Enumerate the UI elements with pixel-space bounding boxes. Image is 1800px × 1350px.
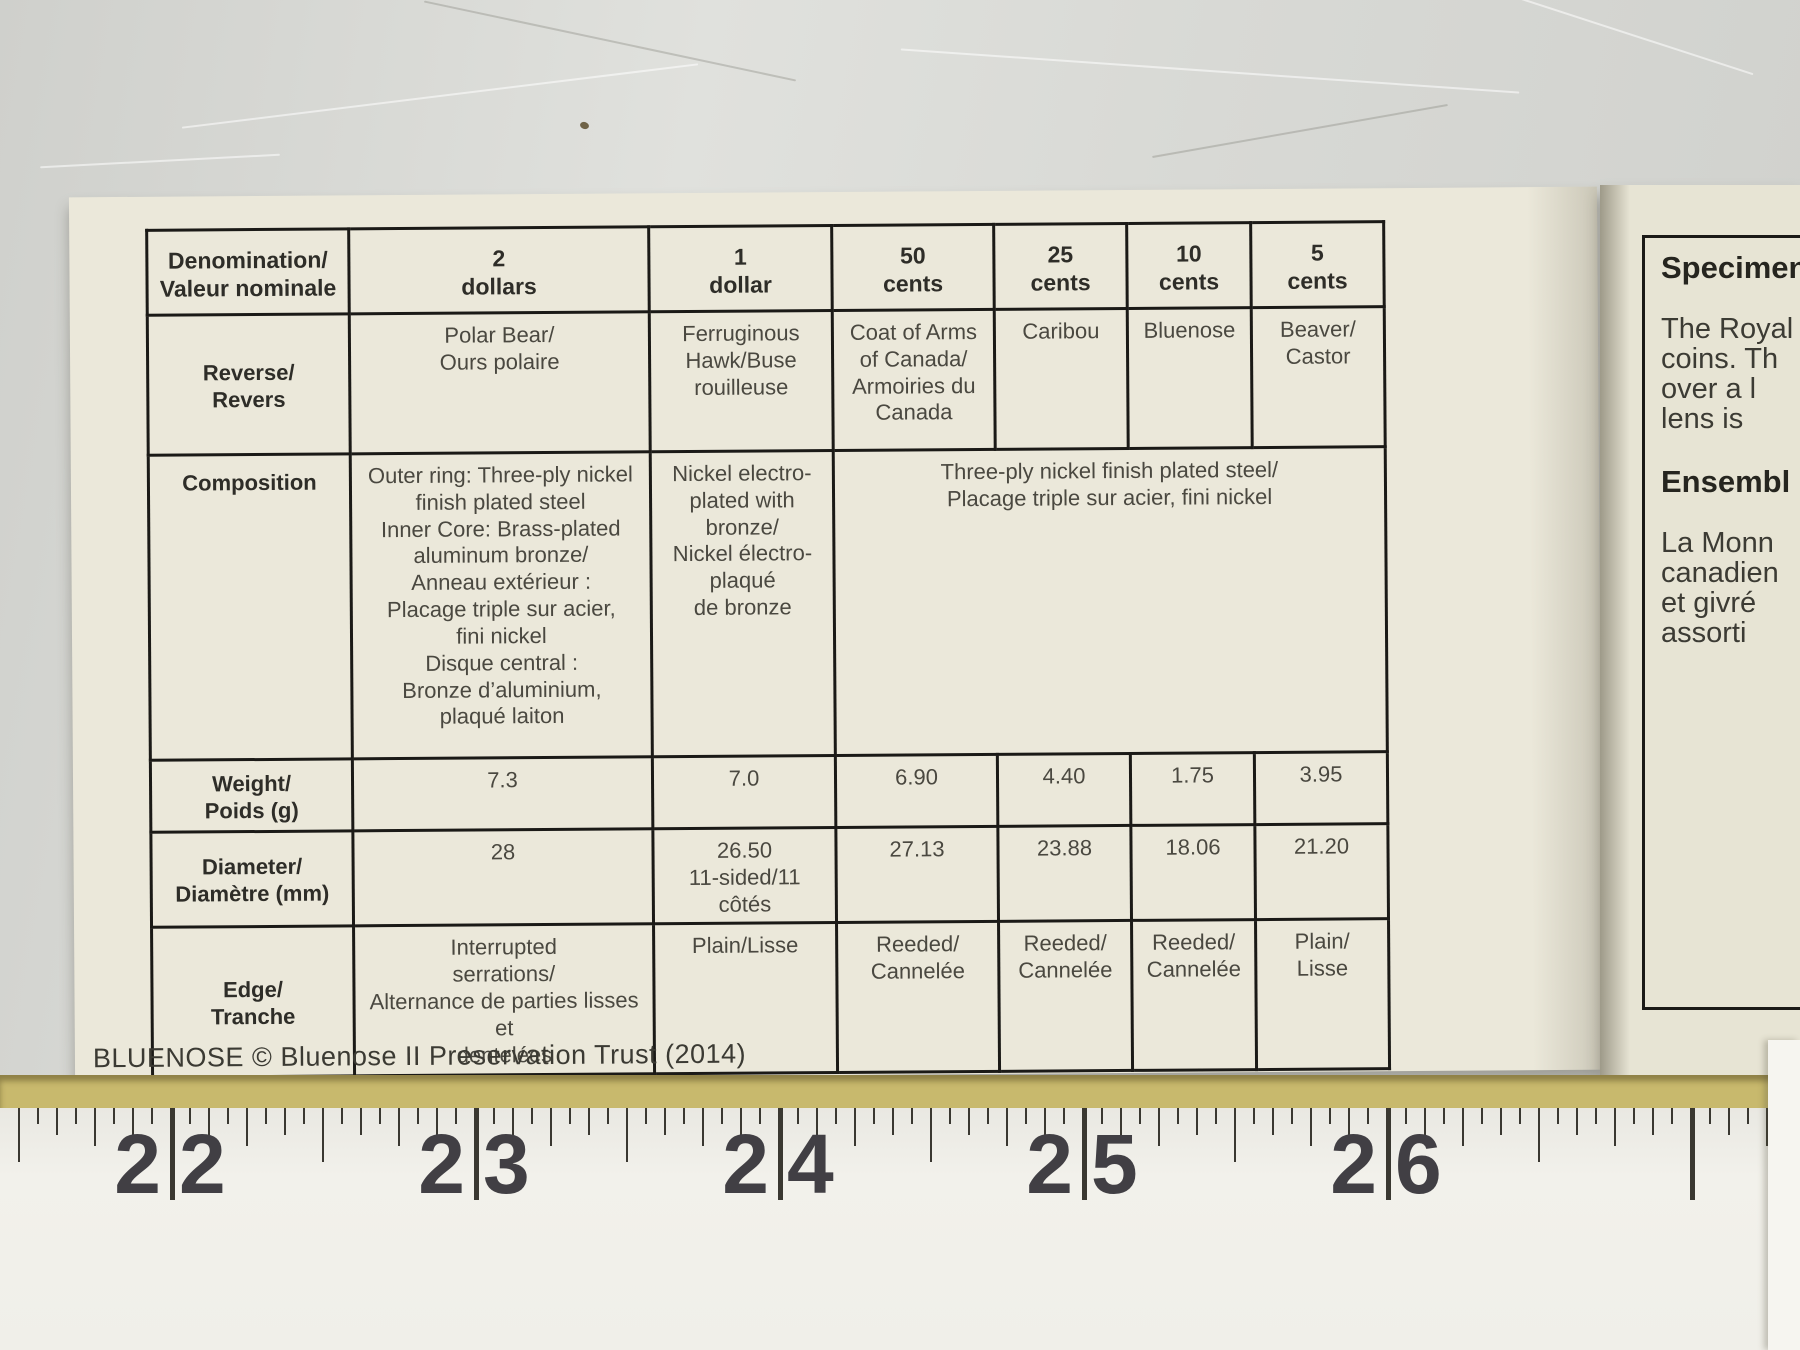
scratch-mark [40,154,280,169]
ruler-tick [1006,1108,1008,1146]
specimen-text-line: La Monn [1661,528,1800,558]
cell-diameter-2-dollars: 28 [353,829,654,927]
ruler-tick [1576,1108,1578,1135]
ruler-tick [1690,1108,1695,1200]
coin-spec-table: Denomination/ Valeur nominale 2 dollars … [145,220,1391,1078]
ruler-tick [569,1108,571,1124]
ruler-tick [1557,1108,1559,1124]
specimen-title: Specimen [1661,250,1800,286]
cell-reverse-5-cents: Beaver/ Castor [1251,307,1385,448]
specimen-text-line: over a l [1661,374,1800,404]
measuring-ruler: 2223242526 [0,1108,1800,1350]
cell-weight-5-cents: 3.95 [1254,752,1387,825]
ruler-tick [1291,1108,1293,1124]
cell-diameter-5-cents: 21.20 [1255,824,1389,920]
col-header-25-cents: 25 cents [994,223,1128,309]
cell-composition-2-dollars: Outer ring: Three-ply nickel finish plat… [350,452,652,759]
yellow-ruler-edge [0,1075,1800,1108]
booklet-left-page: Denomination/ Valeur nominale 2 dollars … [69,187,1603,1081]
ruler-tick [1177,1108,1179,1124]
specimen-text-line: canadien [1661,558,1800,588]
cell-reverse-1-dollar: Ferruginous Hawk/Buse rouilleuse [649,311,833,452]
col-header-2-dollars: 2 dollars [349,227,650,314]
ruler-number: 26 [1330,1122,1459,1206]
cell-edge-25-cents: Reeded/ Cannelée [999,921,1133,1071]
ruler-tick [303,1108,305,1124]
col-header-50-cents: 50 cents [832,224,995,310]
specimen-subtitle: Ensembl [1661,464,1800,500]
cell-reverse-2-dollars: Polar Bear/ Ours polaire [349,312,650,454]
col-header-10-cents: 10 cents [1127,223,1252,309]
ruler-tick [1462,1108,1464,1146]
table-row-weight: Weight/ Poids (g) 7.3 7.0 6.90 4.40 1.75… [150,752,1387,833]
cell-reverse-50-cents: Coat of Arms of Canada/ Armoiries du Can… [832,309,995,450]
ruler-tick [1234,1108,1236,1162]
ruler-tick [949,1108,951,1124]
ruler-tick [1652,1108,1654,1135]
ruler-tick [645,1108,647,1124]
table-row-reverse: Reverse/ Revers Polar Bear/ Ours polaire… [147,307,1385,456]
ruler-tick [18,1108,20,1162]
row-label-weight: Weight/ Poids (g) [150,759,352,832]
ruler-tick [322,1108,324,1162]
col-header-5-cents: 5 cents [1251,222,1385,308]
ruler-tick [1728,1108,1730,1135]
ruler-tick [56,1108,58,1135]
ruler-tick [987,1108,989,1124]
debris-speck [579,121,590,131]
table-row-diameter: Diameter/ Diamètre (mm) 28 26.50 11-side… [151,824,1389,928]
ruler-tick [1481,1108,1483,1124]
ruler-tick [1196,1108,1198,1135]
table-corner-header: Denomination/ Valeur nominale [147,229,350,315]
ruler-tick [911,1108,913,1124]
specimen-box: Specimen The Royal coins. Th over a l le… [1642,235,1800,1010]
specimen-text-line: coins. Th [1661,344,1800,374]
ruler-tick [398,1108,400,1146]
ruler-tick [1595,1108,1597,1124]
cell-diameter-50-cents: 27.13 [836,826,999,923]
cell-reverse-10-cents: Bluenose [1127,308,1252,449]
ruler-tick [1671,1108,1673,1124]
ruler-tick [1500,1108,1502,1135]
cell-weight-50-cents: 6.90 [835,754,997,827]
ruler-tick [1310,1108,1312,1146]
cell-diameter-1-dollar: 26.50 11-sided/11 côtés [653,828,837,925]
ruler-tick [37,1108,39,1124]
ruler-tick [607,1108,609,1124]
cell-weight-2-dollars: 7.3 [352,757,652,831]
row-label-composition: Composition [148,454,352,760]
scratch-mark [1152,104,1448,158]
row-label-reverse: Reverse/ Revers [147,314,350,455]
cell-composition-cents-merged: Three-ply nickel finish plated steel/ Pl… [833,447,1387,756]
ruler-tick [246,1108,248,1146]
ruler-tick [265,1108,267,1124]
ruler-tick [854,1108,856,1146]
ruler-tick [1272,1108,1274,1135]
specimen-text-line: assorti [1661,618,1800,648]
scratch-mark [1487,0,1754,75]
scratch-mark [182,63,698,128]
booklet-right-page: Specimen The Royal coins. Th over a l le… [1600,185,1800,1075]
photo-scene: Denomination/ Valeur nominale 2 dollars … [0,0,1800,1350]
ruler-number: 22 [114,1122,243,1206]
ruler-tick [664,1108,666,1135]
cell-weight-25-cents: 4.40 [997,753,1130,826]
ruler-tick [284,1108,286,1135]
specimen-text-line: et givré [1661,588,1800,618]
scratch-mark [424,1,796,82]
ruler-tick [968,1108,970,1135]
ruler-tick [1253,1108,1255,1124]
col-header-1-dollar: 1 dollar [649,226,833,312]
ruler-tick [873,1108,875,1124]
ruler-tick [360,1108,362,1135]
ruler-tick [626,1108,628,1162]
ruler-tick [379,1108,381,1124]
cell-diameter-25-cents: 23.88 [998,825,1132,921]
copyright-caption: BLUENOSE © Bluenose II Preservation Trus… [93,1039,746,1075]
ruler-tick [341,1108,343,1124]
ruler-number: 25 [1026,1122,1155,1206]
cell-reverse-25-cents: Caribou [994,308,1128,449]
ruler-tick [75,1108,77,1124]
ruler-tick [94,1108,96,1146]
ruler-tick [1709,1108,1711,1124]
scratch-mark [901,48,1520,93]
ruler-tick [1538,1108,1540,1162]
ruler-tick [930,1108,932,1162]
row-label-diameter: Diameter/ Diamètre (mm) [151,831,354,928]
ruler-tick [1519,1108,1521,1124]
ruler-tick [1614,1108,1616,1146]
ruler-tick [1158,1108,1160,1146]
ruler-number: 23 [418,1122,547,1206]
cell-weight-1-dollar: 7.0 [652,756,835,829]
cell-edge-50-cents: Reeded/ Cannelée [837,922,1000,1072]
ruler-tick [588,1108,590,1135]
ruler-tick [702,1108,704,1146]
table-header-row: Denomination/ Valeur nominale 2 dollars … [147,222,1385,316]
ruler-number: 24 [722,1122,851,1206]
specimen-text-line: lens is [1661,404,1800,434]
page-edge-strip [1768,1040,1800,1350]
cell-edge-5-cents: Plain/ Lisse [1256,919,1390,1069]
cell-edge-10-cents: Reeded/ Cannelée [1132,920,1257,1070]
ruler-tick [1215,1108,1217,1124]
ruler-tick [1747,1108,1749,1124]
ruler-tick [1633,1108,1635,1124]
ruler-tick [550,1108,552,1146]
specimen-text-line: The Royal [1661,314,1800,344]
cell-weight-10-cents: 1.75 [1130,753,1254,826]
cell-composition-1-dollar: Nickel electro- plated with bronze/ Nick… [650,451,835,757]
ruler-tick [683,1108,685,1124]
cell-diameter-10-cents: 18.06 [1131,825,1256,921]
ruler-tick [892,1108,894,1135]
table-row-composition: Composition Outer ring: Three-ply nickel… [148,447,1387,761]
